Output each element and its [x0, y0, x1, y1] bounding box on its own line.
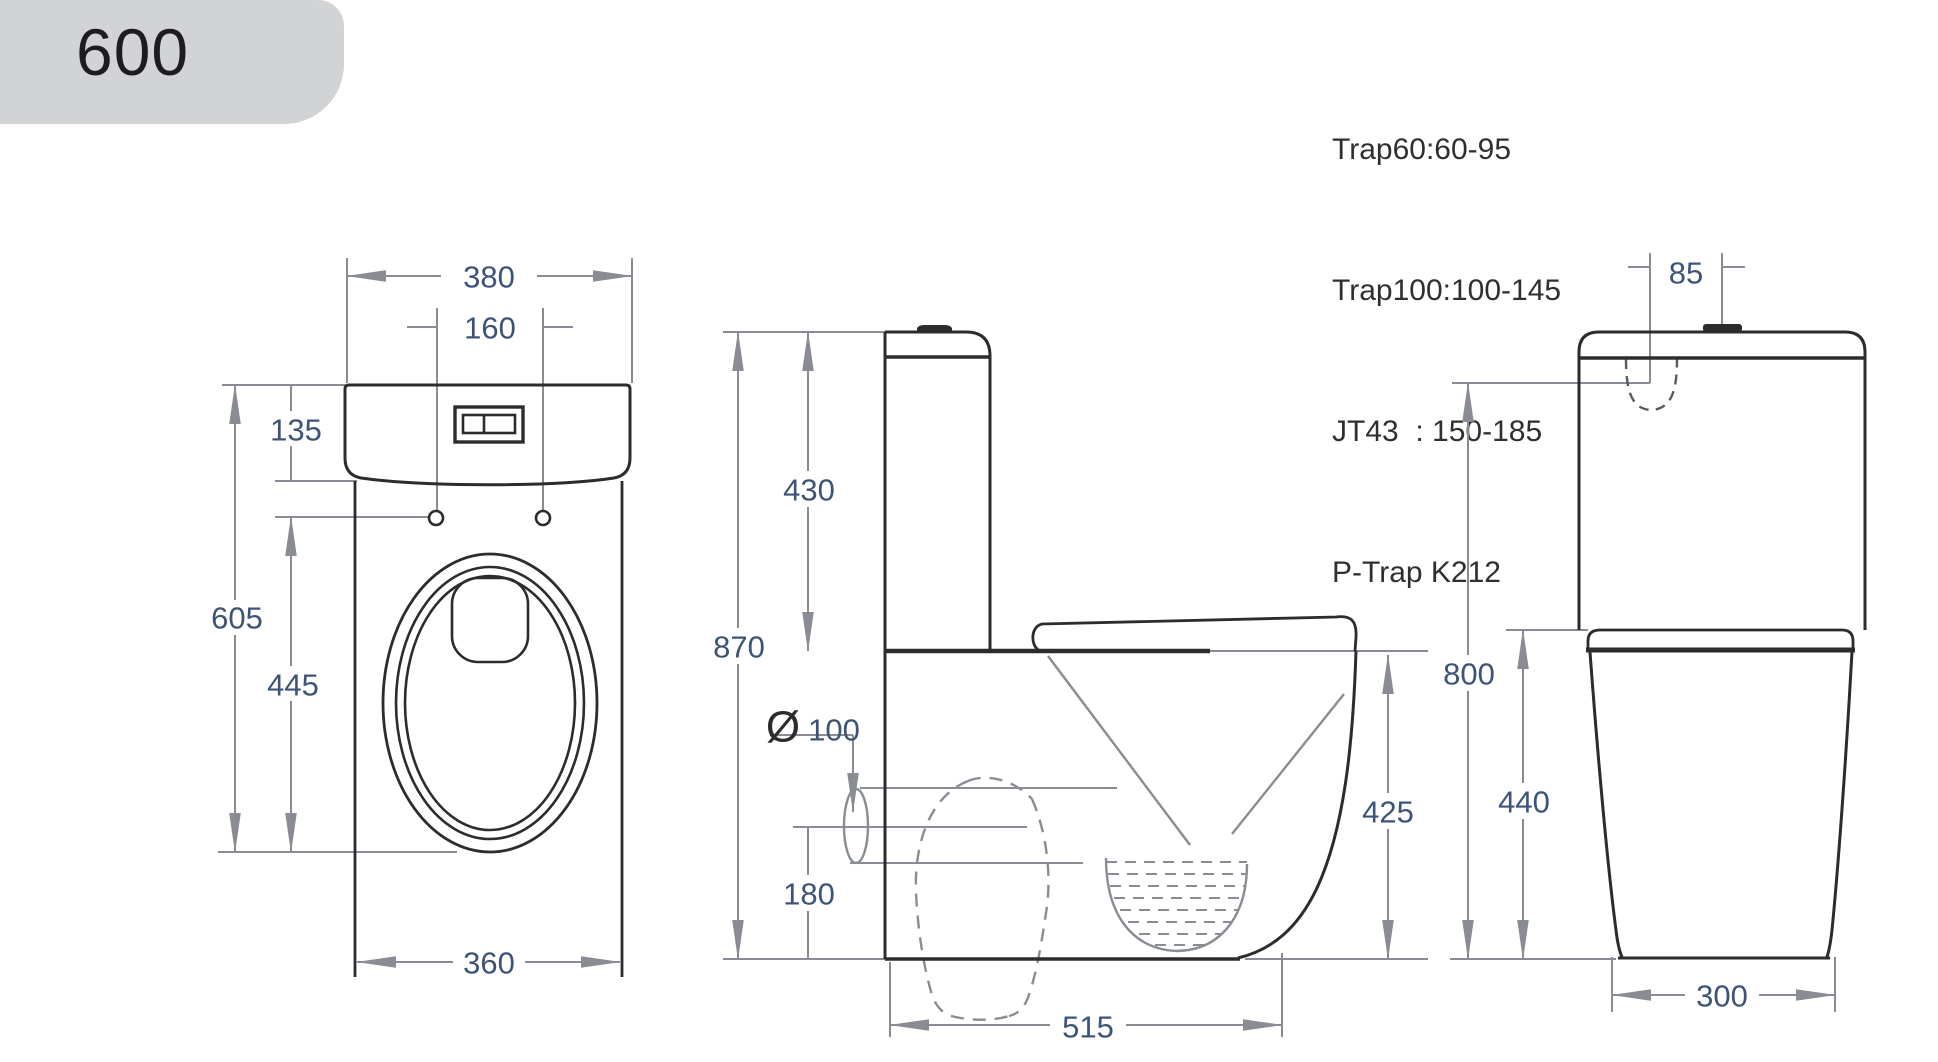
dim-front-base-width: 360 — [463, 946, 515, 981]
dim-side-cistern-height: 430 — [783, 473, 835, 508]
dim-rear-seat-height: 440 — [1498, 785, 1550, 820]
flush-button-inner — [463, 415, 515, 433]
side-dimension-lines — [738, 332, 1388, 1025]
seat-mount-hole-right — [536, 511, 550, 525]
bowl-inner-lines — [1048, 656, 1344, 951]
seat-mount-hole-left — [429, 511, 443, 525]
rear-cistern — [1579, 332, 1865, 630]
dim-rear-overall-height: 800 — [1443, 657, 1495, 692]
inlet-hole-dashed — [1626, 359, 1677, 410]
rear-view: 85 800 440 300 — [1434, 253, 1865, 1014]
front-dimension-labels: 380 160 135 605 445 360 — [205, 258, 537, 981]
rear-dimension-labels: 85 800 440 300 — [1434, 256, 1759, 1014]
side-flush-button — [917, 325, 952, 332]
seat-outer-ring — [383, 554, 597, 852]
front-extension-lines — [218, 258, 632, 852]
dim-side-outlet-diameter: 100 — [808, 713, 860, 748]
trapway-dashed-outline — [916, 778, 1049, 1020]
bowl-water-area — [452, 578, 528, 662]
water-hatch — [1106, 862, 1247, 945]
flush-button-outer — [455, 407, 523, 442]
dim-rear-button-offset: 85 — [1669, 256, 1703, 291]
rear-dimension-lines — [1468, 383, 1835, 995]
side-extension-lines — [723, 332, 1428, 1037]
rear-extension-lines — [1450, 253, 1835, 1012]
dim-side-outlet-axis-height: 180 — [783, 877, 835, 912]
rear-toilet-outline — [1579, 324, 1865, 958]
dim-front-hole-spacing: 160 — [464, 311, 516, 346]
seat-middle-ring — [396, 567, 584, 839]
front-dimension-lines — [235, 276, 632, 962]
front-view: 380 160 135 605 445 360 — [205, 258, 632, 981]
outlet-diameter-symbol: Ø — [766, 703, 800, 752]
bowl-rim-ring — [405, 576, 575, 830]
dim-rear-base-width: 300 — [1696, 979, 1748, 1014]
rear-seat-slab — [1588, 630, 1853, 650]
sump-outline — [1106, 858, 1247, 951]
dim-front-overall-depth: 605 — [211, 601, 263, 636]
side-cistern — [885, 332, 990, 650]
front-toilet-outline — [345, 385, 630, 977]
dim-front-hole-to-front: 445 — [267, 668, 319, 703]
side-view: 430 870 Ø 100 180 515 425 — [705, 325, 1428, 1045]
rear-flush-button — [1703, 324, 1742, 332]
dim-side-depth: 515 — [1062, 1010, 1114, 1045]
dim-front-cistern-height: 135 — [270, 413, 322, 448]
technical-drawing-page: 600 Trap60:60-95 Trap100:100-145 JT43 : … — [0, 0, 1938, 1062]
dim-side-overall-height: 870 — [713, 630, 765, 665]
toilet-dimension-drawing: 380 160 135 605 445 360 — [0, 0, 1938, 1062]
dim-front-tank-width: 380 — [463, 260, 515, 295]
dim-side-rim-height: 425 — [1362, 795, 1414, 830]
seat-lid — [1033, 617, 1356, 651]
